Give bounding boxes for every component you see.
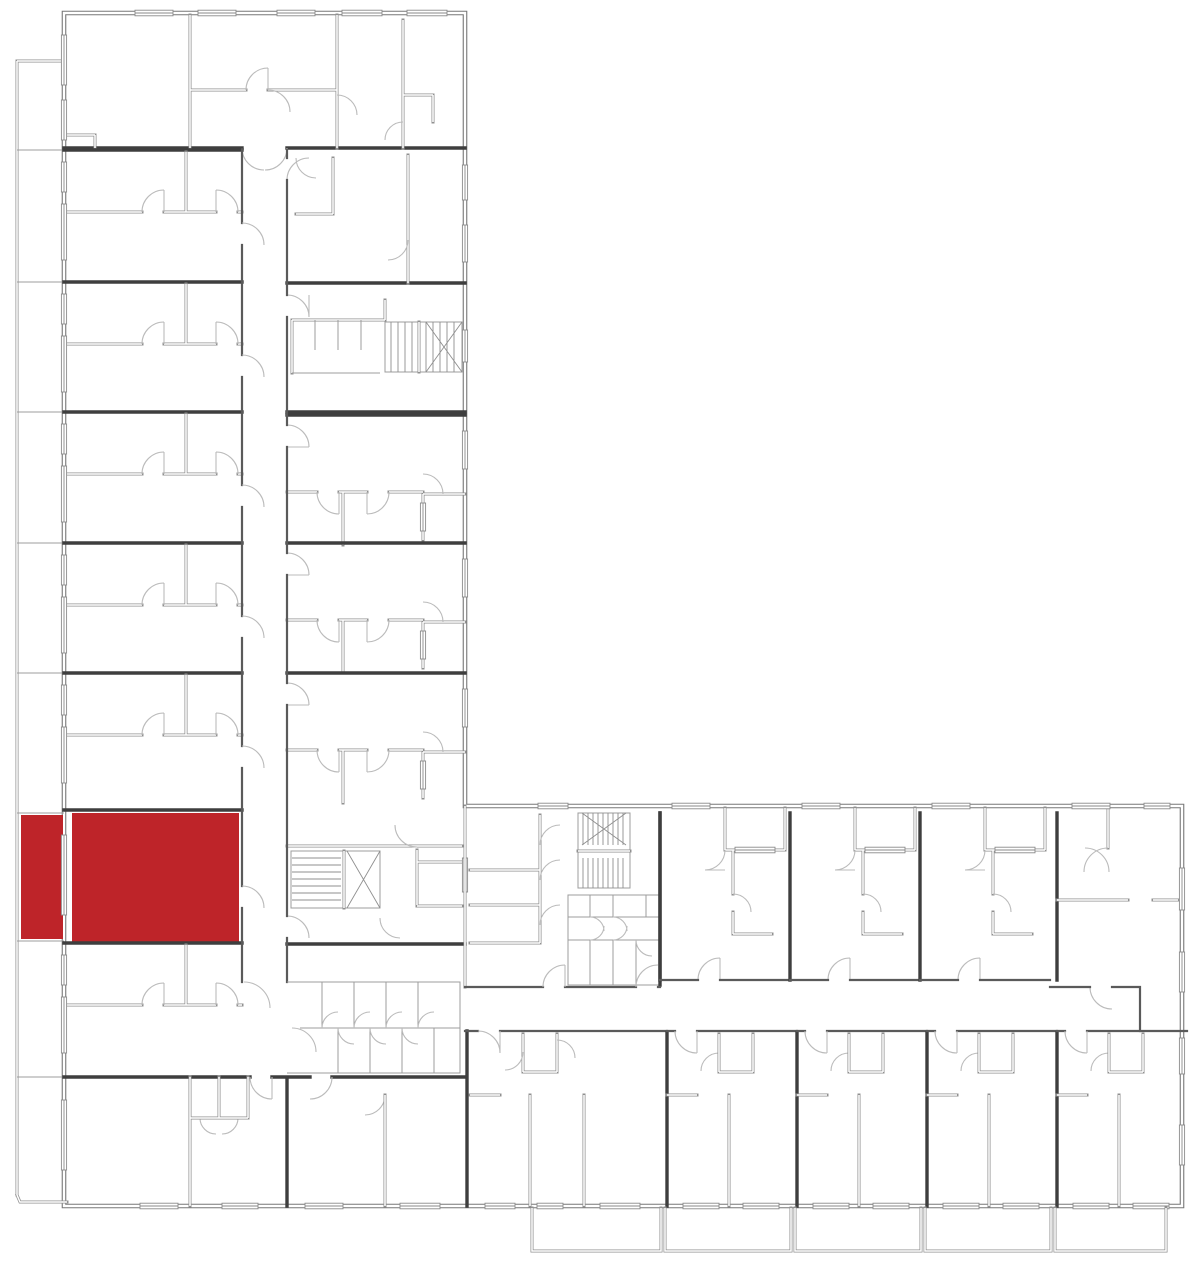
highlighted-unit[interactable] [21,810,242,944]
plan-background [0,0,1200,1270]
floor-plan: L-shaped apartment building floor plan w… [0,0,1200,1270]
highlighted-unit-room[interactable] [72,813,239,944]
floor-plan-page: L-shaped apartment building floor plan w… [0,0,1200,1270]
highlighted-unit-balcony[interactable] [21,815,63,939]
highlighted-unit-window [61,835,66,915]
